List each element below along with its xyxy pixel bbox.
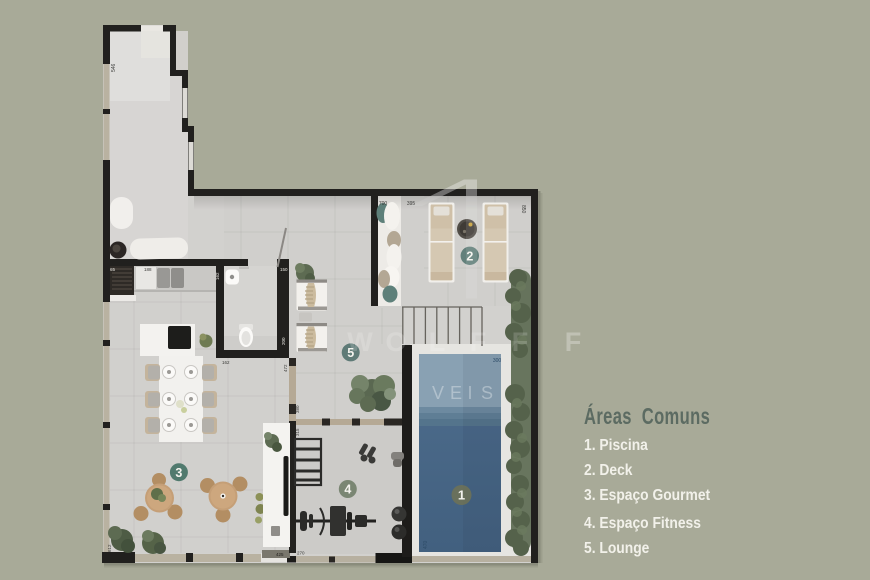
svg-text:380: 380 xyxy=(295,405,300,413)
svg-text:S: S xyxy=(481,383,493,403)
svg-text:470: 470 xyxy=(423,540,429,549)
svg-text:150: 150 xyxy=(280,267,288,272)
svg-text:I: I xyxy=(467,383,472,403)
svg-text:162: 162 xyxy=(222,360,230,365)
svg-text:1: 1 xyxy=(458,488,465,503)
svg-text:O: O xyxy=(385,327,406,357)
svg-text:W: W xyxy=(347,327,373,357)
svg-text:F: F xyxy=(470,327,487,357)
svg-text:546: 546 xyxy=(111,63,117,72)
svg-text:425: 425 xyxy=(276,552,284,557)
svg-text:F: F xyxy=(512,327,529,357)
svg-text:L: L xyxy=(429,327,446,357)
svg-text:612: 612 xyxy=(107,544,112,552)
svg-text:162: 162 xyxy=(215,272,220,280)
svg-text:200: 200 xyxy=(281,337,286,345)
svg-text:3: 3 xyxy=(175,466,182,480)
svg-text:270: 270 xyxy=(297,551,305,556)
svg-text:315: 315 xyxy=(295,428,300,436)
svg-text:188: 188 xyxy=(144,267,152,272)
svg-text:V: V xyxy=(432,383,444,403)
svg-text:472: 472 xyxy=(283,364,288,372)
svg-text:E: E xyxy=(450,383,462,403)
svg-text:850: 850 xyxy=(520,205,526,214)
svg-text:4: 4 xyxy=(344,483,351,497)
svg-text:300: 300 xyxy=(493,358,502,364)
svg-text:700: 700 xyxy=(379,201,388,207)
svg-text:65: 65 xyxy=(110,267,116,272)
svg-text:F: F xyxy=(565,327,582,357)
